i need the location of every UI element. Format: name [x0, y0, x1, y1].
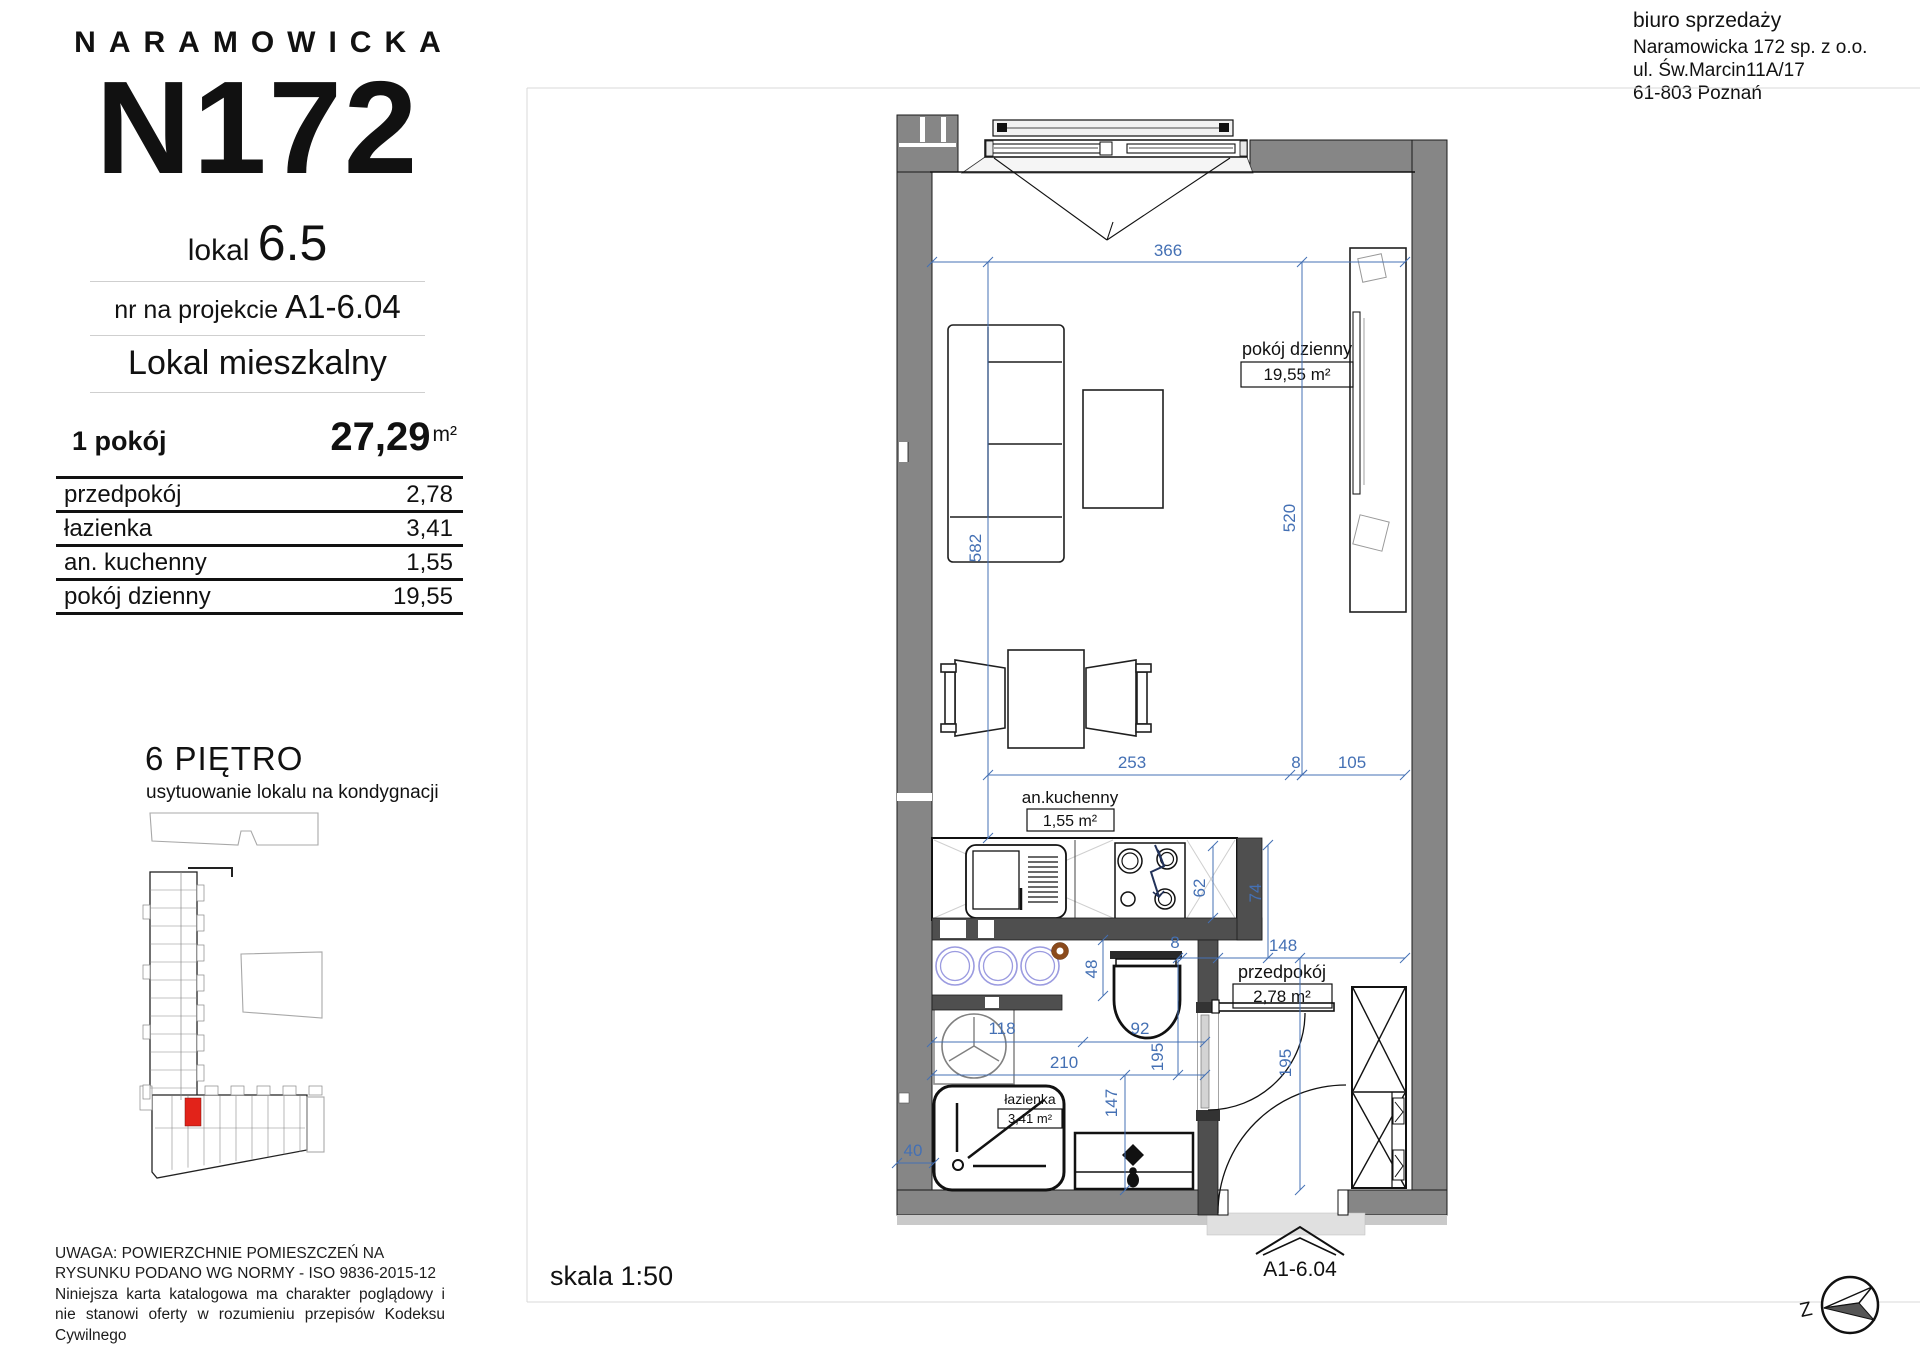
dimension-label: 8	[1291, 753, 1300, 772]
north-compass-icon: Z	[1798, 1277, 1878, 1333]
dimension-label: 105	[1338, 753, 1366, 772]
room-label: an.kuchenny	[1022, 788, 1119, 807]
room-area-label: 3,41 m²	[1008, 1111, 1053, 1126]
dimension-label: 195	[1276, 1049, 1295, 1077]
building-wing-north	[150, 872, 197, 1100]
dimension-label: 8	[1170, 933, 1179, 952]
room-area-label: 2,78 m²	[1253, 987, 1311, 1006]
dimension-label: 520	[1280, 504, 1299, 532]
hallway-furniture	[1212, 987, 1406, 1188]
scale-label: skala 1:50	[550, 1261, 673, 1291]
room-area-label: 1,55 m²	[1043, 813, 1098, 830]
coffee-table	[1083, 390, 1163, 508]
dimension-label: 366	[1154, 241, 1182, 260]
room-label: łazienka	[1004, 1091, 1056, 1107]
window-end-block	[1219, 123, 1229, 132]
dimension-label: 92	[1131, 1019, 1150, 1038]
dimension-label: 147	[1102, 1089, 1121, 1117]
dimension-label: 74	[1246, 884, 1265, 903]
window-end-block	[997, 123, 1007, 132]
toilet-cistern	[1110, 951, 1182, 959]
shower-drain	[953, 1160, 963, 1170]
living-room-furniture	[941, 248, 1406, 748]
room-area-label: 19,55 m²	[1263, 365, 1330, 384]
highlighted-unit	[185, 1098, 201, 1126]
room-label: pokój dzienny	[1242, 339, 1352, 359]
entrance-unit-label: A1-6.04	[1263, 1258, 1337, 1281]
dimension-label: 48	[1082, 960, 1101, 979]
key-plan	[140, 813, 324, 1178]
tv	[1353, 312, 1360, 494]
door-leaf	[1201, 1015, 1209, 1108]
window	[930, 120, 1415, 240]
dining-table	[1008, 650, 1084, 748]
door-swings	[1208, 1013, 1346, 1213]
room-label: przedpokój	[1238, 962, 1326, 982]
dimension-label: 118	[988, 1019, 1015, 1038]
dimension-label: 40	[904, 1141, 923, 1160]
dimension-label: 210	[1050, 1053, 1078, 1072]
chair	[955, 660, 1005, 736]
faucet-icon	[1127, 1173, 1139, 1188]
floor-plan-drawing: pokój dzienny19,55 m²an.kuchenny1,55 m²p…	[0, 0, 1920, 1358]
dimension-label: 148	[1269, 936, 1297, 955]
laundry-niche	[936, 943, 1069, 986]
entrance-door-arc	[1218, 1085, 1346, 1213]
dimension-label: 195	[1148, 1043, 1167, 1071]
sheet-frame	[527, 88, 1920, 1302]
dimension-label: 253	[1118, 753, 1146, 772]
chair	[1086, 660, 1136, 736]
dimension-label: 62	[1190, 879, 1209, 898]
dimension-label: 582	[966, 534, 985, 562]
